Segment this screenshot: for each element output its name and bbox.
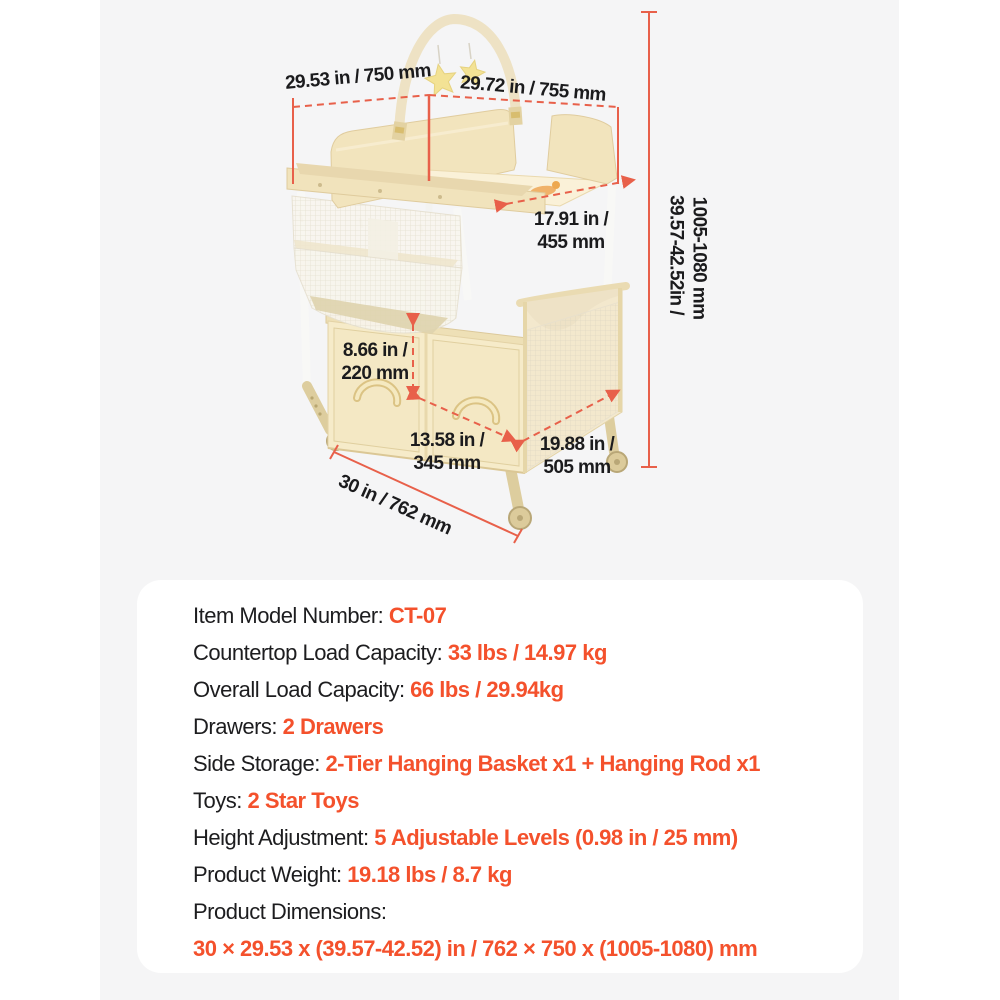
spec-value: 2 Star Toys: [247, 788, 358, 813]
dim-label-base-depth: 19.88 in / 505 mm: [540, 433, 614, 479]
dim-label-drawer-width: 13.58 in / 345 mm: [410, 429, 484, 475]
side-rail-panel: [547, 115, 617, 184]
spec-value: 33 lbs / 14.97 kg: [448, 640, 607, 665]
spec-value: 2 Drawers: [283, 714, 384, 739]
dim-label-height-mm: 1005-1080 mm: [688, 197, 711, 320]
spec-value: 5 Adjustable Levels (0.98 in / 25 mm): [374, 825, 737, 850]
spec-label: Countertop Load Capacity:: [193, 640, 448, 665]
spec-value: CT-07: [389, 603, 446, 628]
dim-label-tabletop-depth: 17.91 in / 455 mm: [534, 208, 608, 254]
hanging-basket: [292, 196, 462, 334]
spec-value: 19.18 lbs / 8.7 kg: [347, 862, 512, 887]
changing-tabletop: [287, 109, 617, 214]
spec-row-toys: Toys: 2 Star Toys: [193, 782, 823, 819]
spec-value: 2-Tier Hanging Basket x1 + Hanging Rod x…: [325, 751, 760, 776]
spec-card: Item Model Number: CT-07 Countertop Load…: [137, 580, 863, 973]
spec-label: Overall Load Capacity:: [193, 677, 410, 702]
spec-row-product-dimensions: Product Dimensions:: [193, 893, 823, 930]
spec-label: Side Storage:: [193, 751, 325, 776]
spec-row-drawers: Drawers: 2 Drawers: [193, 708, 823, 745]
spec-value: 66 lbs / 29.94kg: [410, 677, 563, 702]
spec-row-product-weight: Product Weight: 19.18 lbs / 8.7 kg: [193, 856, 823, 893]
spec-row-model: Item Model Number: CT-07: [193, 597, 823, 634]
spec-row-overall-load: Overall Load Capacity: 66 lbs / 29.94kg: [193, 671, 823, 708]
dim-line-top-width: [293, 95, 429, 107]
spec-row-height-adjustment: Height Adjustment: 5 Adjustable Levels (…: [193, 819, 823, 856]
product-dimension-infographic: 29.53 in / 750 mm 29.72 in / 755 mm 17.9…: [0, 0, 1000, 1000]
spec-label: Product Weight:: [193, 862, 347, 887]
spec-label: Product Dimensions:: [193, 899, 386, 924]
spec-label: Item Model Number:: [193, 603, 389, 628]
spec-label: Toys:: [193, 788, 247, 813]
spec-value: 30 × 29.53 x (39.57-42.52) in / 762 × 75…: [193, 936, 757, 961]
dim-label-basket-height: 8.66 in / 220 mm: [341, 339, 408, 385]
spec-label: Height Adjustment:: [193, 825, 374, 850]
spec-row-side-storage: Side Storage: 2-Tier Hanging Basket x1 +…: [193, 745, 823, 782]
spec-row-product-dimensions-value: 30 × 29.53 x (39.57-42.52) in / 762 × 75…: [193, 930, 823, 967]
dim-label-height-in: 39.57-42.52in /: [665, 195, 688, 315]
spec-label: Drawers:: [193, 714, 283, 739]
spec-row-countertop-load: Countertop Load Capacity: 33 lbs / 14.97…: [193, 634, 823, 671]
